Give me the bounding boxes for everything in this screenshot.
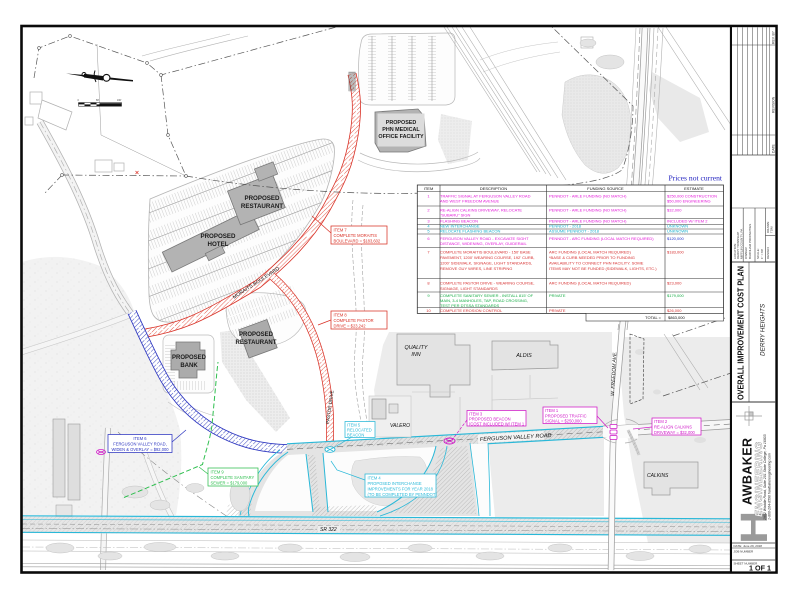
svg-text:MIFFLIN COUNTY, PA: MIFFLIN COUNTY, PA <box>740 229 744 259</box>
svg-text:HOTEL: HOTEL <box>208 241 229 248</box>
svg-text:INN: INN <box>411 352 420 358</box>
svg-text:FERGUSON VALLEY ROAD,: FERGUSON VALLEY ROAD, <box>113 442 167 447</box>
svg-text:$120,000: $120,000 <box>667 236 684 241</box>
svg-text:ITEM 6: ITEM 6 <box>133 436 147 441</box>
svg-text:$50,000 ENGINEERING: $50,000 ENGINEERING <box>667 199 711 204</box>
svg-text:ITEM: ITEM <box>424 186 434 191</box>
svg-text:DRIVE = $23,242: DRIVE = $23,242 <box>334 324 367 329</box>
svg-text:ASSUME PENNDOT - 2018: ASSUME PENNDOT - 2018 <box>549 229 600 234</box>
svg-text:PROPOSED: PROPOSED <box>244 195 280 202</box>
svg-text:BANK: BANK <box>180 363 198 369</box>
svg-text:RELOCATE FLASHING BEACON: RELOCATE FLASHING BEACON <box>440 229 500 234</box>
svg-text:QUALITY: QUALITY <box>404 345 427 351</box>
svg-text:SIGNAL = $250,000: SIGNAL = $250,000 <box>545 419 582 424</box>
svg-text:REV. BY: REV. BY <box>771 30 775 44</box>
svg-text:PENNDOT - ARC FUNDING (LOC: PENNDOT - ARC FUNDING (LOCAL MATCH REQUI… <box>549 236 654 241</box>
svg-text:TDM: TDM <box>769 226 773 233</box>
svg-text:RESTAURANT: RESTAURANT <box>241 203 283 210</box>
svg-text:*BASE & CURB NEEDED PRIOR: *BASE & CURB NEEDED PRIOR TO FUNDING <box>549 255 635 260</box>
svg-text:PAVEMENT, 1200' WEARING COU: PAVEMENT, 1200' WEARING COURSE, 192' CUR… <box>440 255 535 260</box>
svg-text:$23,000: $23,000 <box>667 281 682 286</box>
svg-text:1-800-264-8590 hawba: 1-800-264-8590 hawbakerengineering.com <box>767 453 771 520</box>
svg-text:PENNDOT - ARLE FUNDING (NO: PENNDOT - ARLE FUNDING (NO MATCH) <box>549 194 627 199</box>
svg-text:PHN MEDICAL: PHN MEDICAL <box>382 127 420 133</box>
svg-text:TOTAL =: TOTAL = <box>645 315 661 320</box>
svg-text:REVISION: REVISION <box>771 96 775 113</box>
svg-text:COMPLETE SANITARY: COMPLETE SANITARY <box>211 475 255 480</box>
svg-text:SR 322: SR 322 <box>320 527 337 533</box>
svg-text:$183,000: $183,000 <box>667 250 684 255</box>
svg-text:1 OF 1: 1 OF 1 <box>749 564 771 573</box>
svg-text:160': 160' <box>117 99 122 102</box>
svg-text:AVAILABILITY TO CONNECT PHN: AVAILABILITY TO CONNECT PHN FACILITY. SO… <box>549 261 644 266</box>
svg-text:ITEM 1: ITEM 1 <box>545 408 559 413</box>
svg-text:ARC FUNDING (LOCAL MATCH: ARC FUNDING (LOCAL MATCH REQUIRED) <box>549 281 631 286</box>
svg-text:$179,000: $179,000 <box>667 293 684 298</box>
svg-text:PROPOSED: PROPOSED <box>200 233 236 240</box>
svg-text:COMPLETE MORAITIS: COMPLETE MORAITIS <box>334 233 378 238</box>
svg-text:PROPOSED INTERCHANGE: PROPOSED INTERCHANGE <box>368 481 422 486</box>
svg-text:AWBAKER: AWBAKER <box>741 438 755 505</box>
svg-text:COMPLETE PASTOR: COMPLETE PASTOR <box>334 318 374 323</box>
svg-text:ESTIMATE: ESTIMATE <box>684 186 704 191</box>
svg-text:PROPOSED: PROPOSED <box>239 332 274 338</box>
svg-text:RESTAURANT: RESTAURANT <box>236 340 277 346</box>
svg-text:COMPLETE PASTOR DRIVE - WE: COMPLETE PASTOR DRIVE - WEARING COURSE, <box>440 281 535 286</box>
svg-text:PROPOSED: PROPOSED <box>172 355 207 361</box>
svg-text:DATE: June 29, 2018: DATE: June 29, 2018 <box>734 544 763 548</box>
svg-text:DERRY HEIGHTS: DERRY HEIGHTS <box>760 303 767 356</box>
svg-text:ITEM 4: ITEM 4 <box>368 476 382 481</box>
svg-text:DESIGN:: DESIGN: <box>766 246 770 259</box>
svg-text:PRIVATE: PRIVATE <box>549 308 566 313</box>
svg-text:$863,000: $863,000 <box>668 315 685 320</box>
svg-text:AND WEST FREEDOM AVENUE: AND WEST FREEDOM AVENUE <box>440 199 500 204</box>
svg-text:DISTANCE, WIDENING, OVERLAY,: DISTANCE, WIDENING, OVERLAY, GUIDERAIL <box>440 241 527 246</box>
svg-text:Prices not current: Prices not current <box>668 174 722 183</box>
svg-text:DRIVEWAY = $32,000: DRIVEWAY = $32,000 <box>654 430 695 435</box>
svg-text:ITEMS MAY NOT BE FUNDED (: ITEMS MAY NOT BE FUNDED (SIDEWALK, LIGHT… <box>549 266 657 271</box>
svg-text:FUNDING SOURCE: FUNDING SOURCE <box>587 186 624 191</box>
svg-text:DATE: DATE <box>771 143 775 153</box>
svg-text:(TO BE COMPLETED BY PENNDO: (TO BE COMPLETED BY PENNDOT) <box>368 492 438 497</box>
svg-text:(COST INCLUDED W/ ITEM 1: (COST INCLUDED W/ ITEM 1 <box>469 422 525 427</box>
svg-text:DESCRIPTION: DESCRIPTION <box>480 186 507 191</box>
svg-text:PROPOSED: PROPOSED <box>386 120 417 126</box>
svg-text:PENNDOT - ARLE FUNDING (NO: PENNDOT - ARLE FUNDING (NO MATCH) <box>549 208 627 213</box>
svg-text:CALKINS: CALKINS <box>647 473 669 479</box>
svg-text:JOB NUMBER: JOB NUMBER <box>734 550 755 554</box>
svg-text:UNKNOWN: UNKNOWN <box>667 229 688 234</box>
svg-text:SEWER = $179,000: SEWER = $179,000 <box>211 481 248 486</box>
svg-text:REMOVE GUY WIRES, LINE STR: REMOVE GUY WIRES, LINE STRIPING <box>440 266 512 271</box>
svg-text:ARC FUNDING (LOCAL MATCH R: ARC FUNDING (LOCAL MATCH REQUIRED) <box>549 250 631 255</box>
svg-text:1200' SIDEWALK, SIGNAGE, LI: 1200' SIDEWALK, SIGNAGE, LIGHT STANDARDS… <box>440 261 532 266</box>
svg-text:SIGNAGE, LIGHT STANDARDS: SIGNAGE, LIGHT STANDARDS <box>440 286 498 291</box>
svg-text:COMPLETE MORAITIS BOULEVARD: COMPLETE MORAITIS BOULEVARD - 150' BASE <box>440 250 531 255</box>
svg-text:ITEM 9: ITEM 9 <box>211 470 225 475</box>
svg-text:BEACON: BEACON <box>347 433 364 438</box>
svg-text:COMPLETE EROSION CONTROL: COMPLETE EROSION CONTROL <box>440 308 503 313</box>
svg-text:VALERO: VALERO <box>390 423 410 429</box>
svg-text:BURNHAM PROPERTIES: BURNHAM PROPERTIES <box>748 224 752 259</box>
svg-text:RE-ALIGN CALKINS: RE-ALIGN CALKINS <box>654 425 692 430</box>
svg-text:ITEM 7: ITEM 7 <box>334 228 348 233</box>
svg-text:$26,000: $26,000 <box>667 308 682 313</box>
svg-text:80': 80' <box>96 99 100 102</box>
svg-text:ALDIS: ALDIS <box>515 353 532 359</box>
svg-text:$32,000: $32,000 <box>667 208 682 213</box>
svg-text:1" = 80': 1" = 80' <box>760 249 764 259</box>
svg-text:BOULEVARD = $183,602: BOULEVARD = $183,602 <box>334 239 381 244</box>
svg-text:ITEM 8: ITEM 8 <box>334 313 348 318</box>
svg-text:PRIVATE: PRIVATE <box>549 293 566 298</box>
svg-text:ITEM 2: ITEM 2 <box>654 419 668 424</box>
svg-text:10: 10 <box>426 308 431 313</box>
svg-text:WIDEN & OVERLAY = $92,000: WIDEN & OVERLAY = $92,000 <box>111 447 169 452</box>
svg-text:OFFICE FACILITY: OFFICE FACILITY <box>378 134 424 140</box>
svg-text:IMPROVEMENTS FOR YEAR 2018: IMPROVEMENTS FOR YEAR 2018 <box>368 487 434 492</box>
svg-text:"SUBARU" SIGN: "SUBARU" SIGN <box>440 213 471 218</box>
svg-text:OVERALL IMPROVEMENT COST PLAN: OVERALL IMPROVEMENT COST PLAN <box>736 266 746 400</box>
